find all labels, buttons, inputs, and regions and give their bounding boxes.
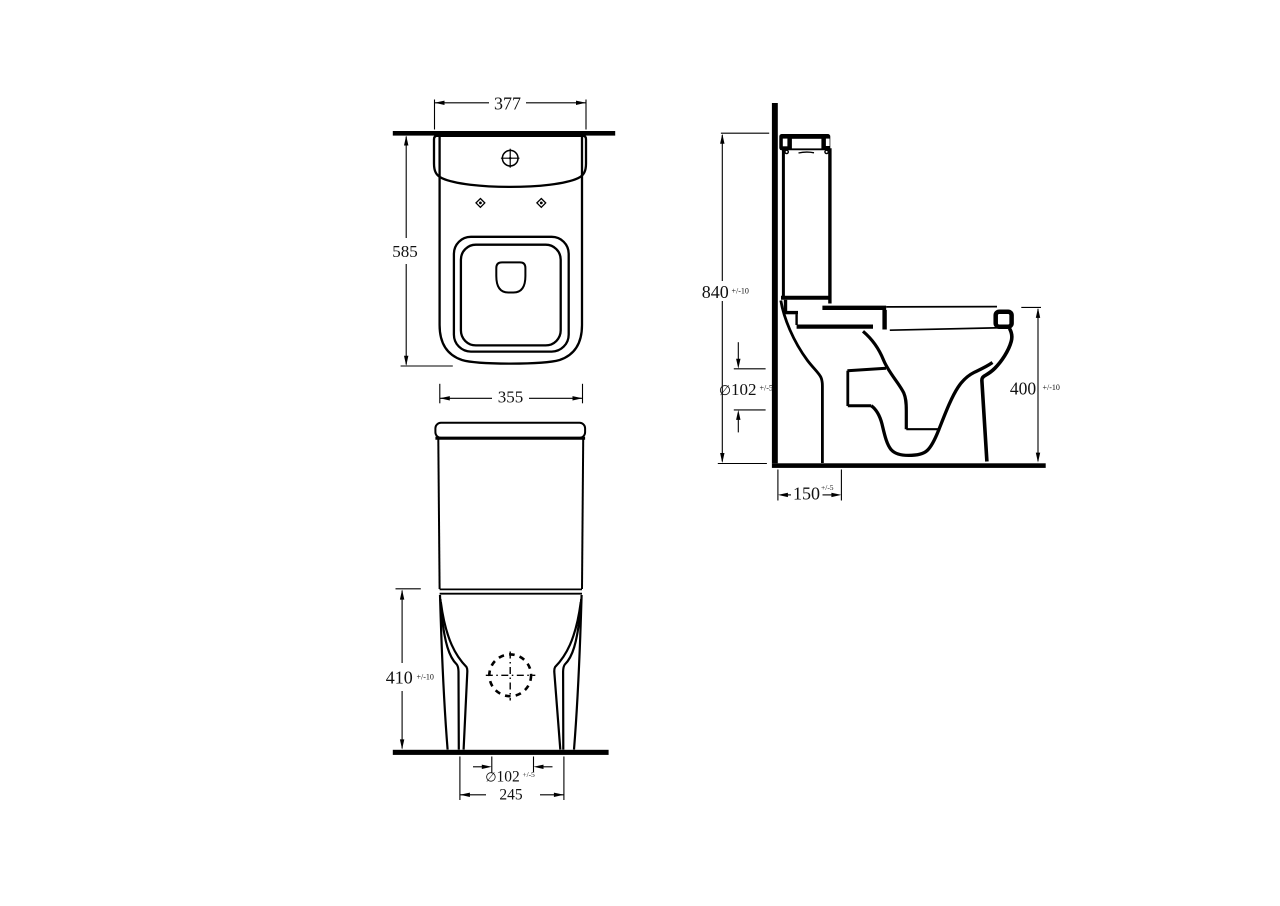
- svg-text:400: 400: [1010, 378, 1037, 398]
- svg-text:377: 377: [494, 94, 521, 114]
- svg-text:840: 840: [702, 282, 729, 302]
- svg-text:150: 150: [793, 484, 820, 504]
- svg-text:+/-10: +/-10: [1043, 383, 1060, 392]
- svg-text:+/-5: +/-5: [821, 483, 834, 492]
- svg-text:+/-5: +/-5: [523, 770, 536, 779]
- svg-text:+/-10: +/-10: [732, 287, 749, 296]
- svg-text:∅102: ∅102: [485, 769, 520, 786]
- svg-text:410: 410: [386, 668, 413, 688]
- svg-text:355: 355: [498, 388, 524, 407]
- svg-text:245: 245: [499, 787, 523, 804]
- svg-text:+/-10: +/-10: [417, 673, 434, 682]
- svg-text:585: 585: [392, 242, 418, 261]
- svg-text:+/-5: +/-5: [760, 384, 773, 393]
